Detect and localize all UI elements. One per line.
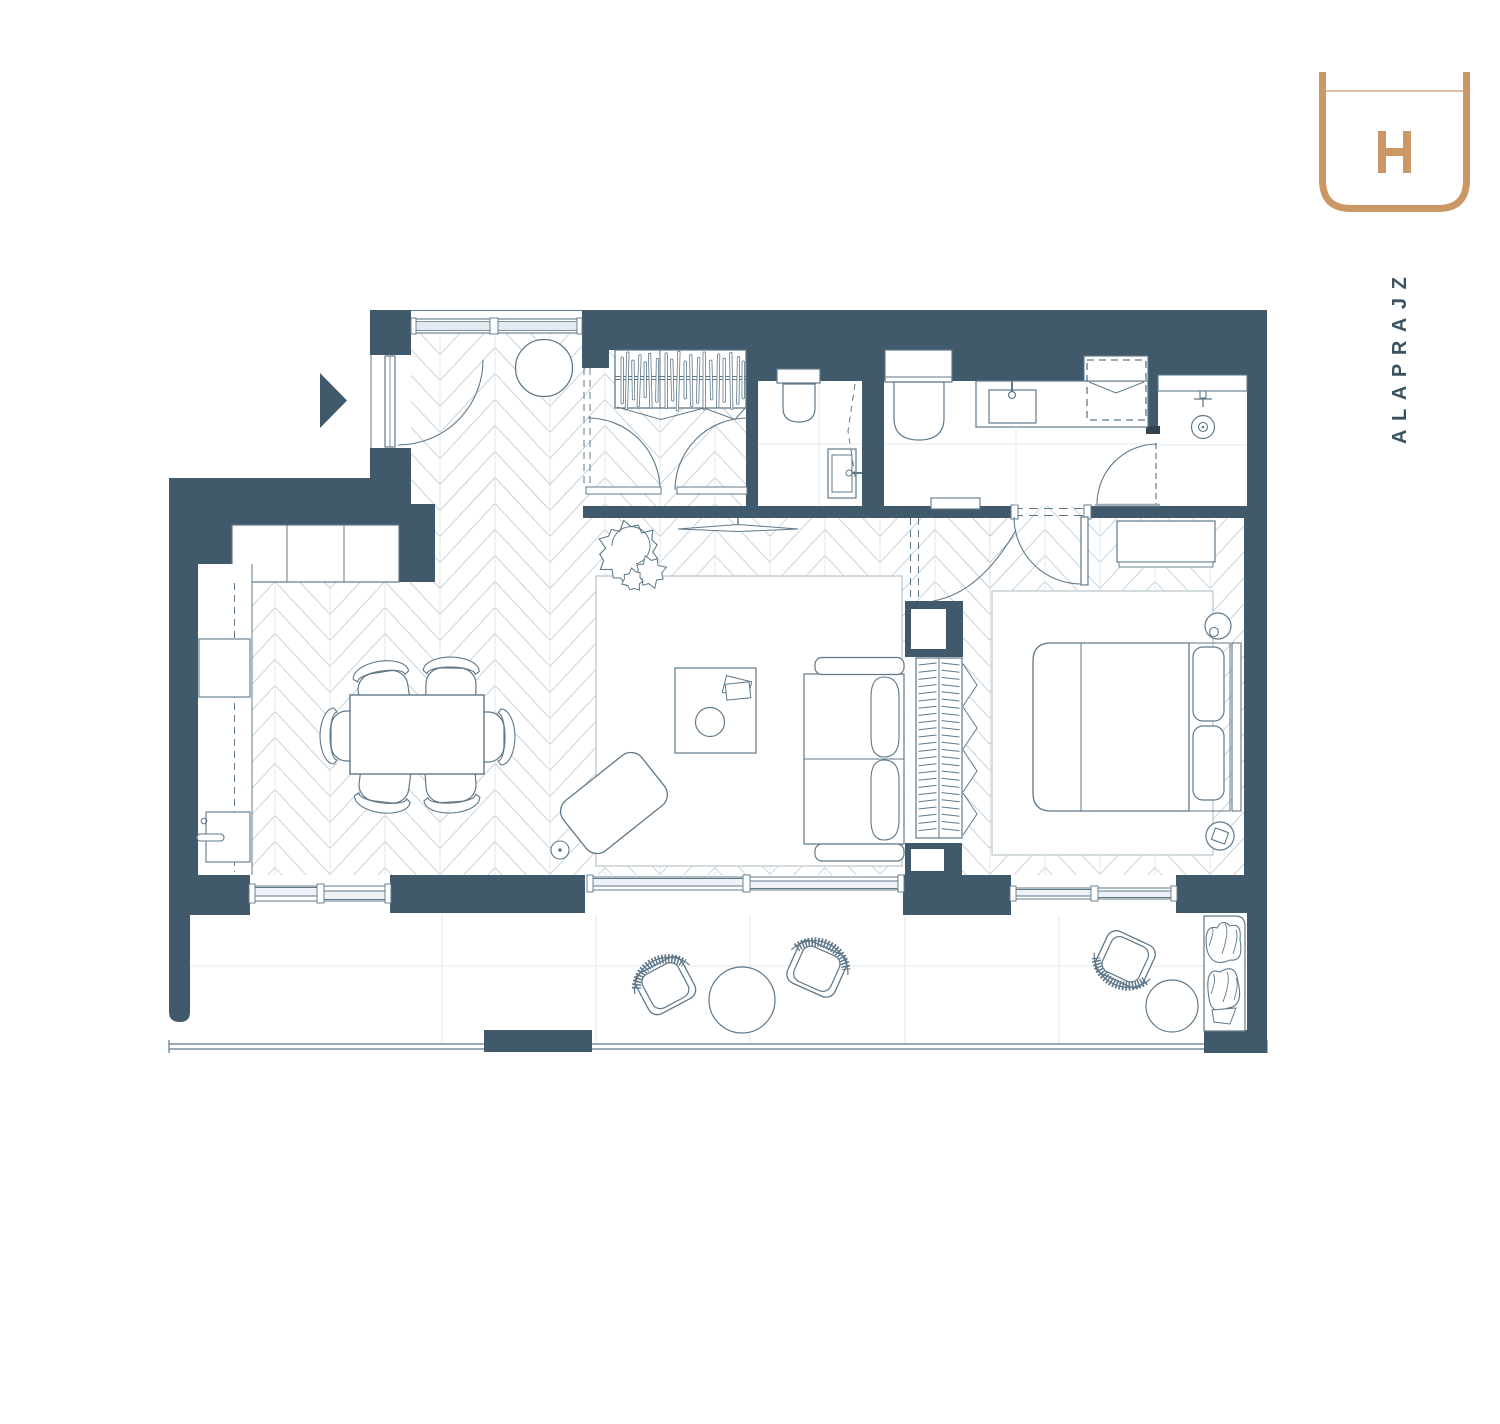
svg-text:ALAPRAJZ: ALAPRAJZ <box>1389 269 1411 444</box>
